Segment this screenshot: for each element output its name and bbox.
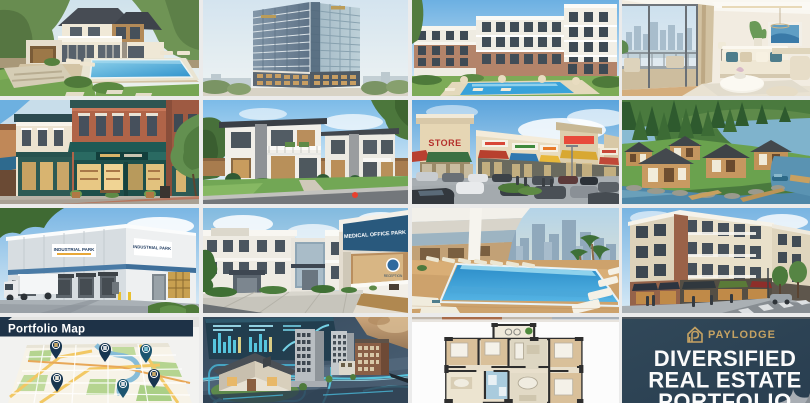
svg-text:PAYLODGE: PAYLODGE bbox=[708, 329, 776, 341]
svg-text:STORE: STORE bbox=[428, 138, 461, 148]
svg-text:INDUSTRIAL PARK: INDUSTRIAL PARK bbox=[54, 247, 96, 252]
svg-text:PORTFOLIO: PORTFOLIO bbox=[658, 389, 792, 403]
svg-text:Portfolio Map: Portfolio Map bbox=[8, 324, 85, 336]
svg-text:RECEPTION: RECEPTION bbox=[384, 274, 403, 278]
